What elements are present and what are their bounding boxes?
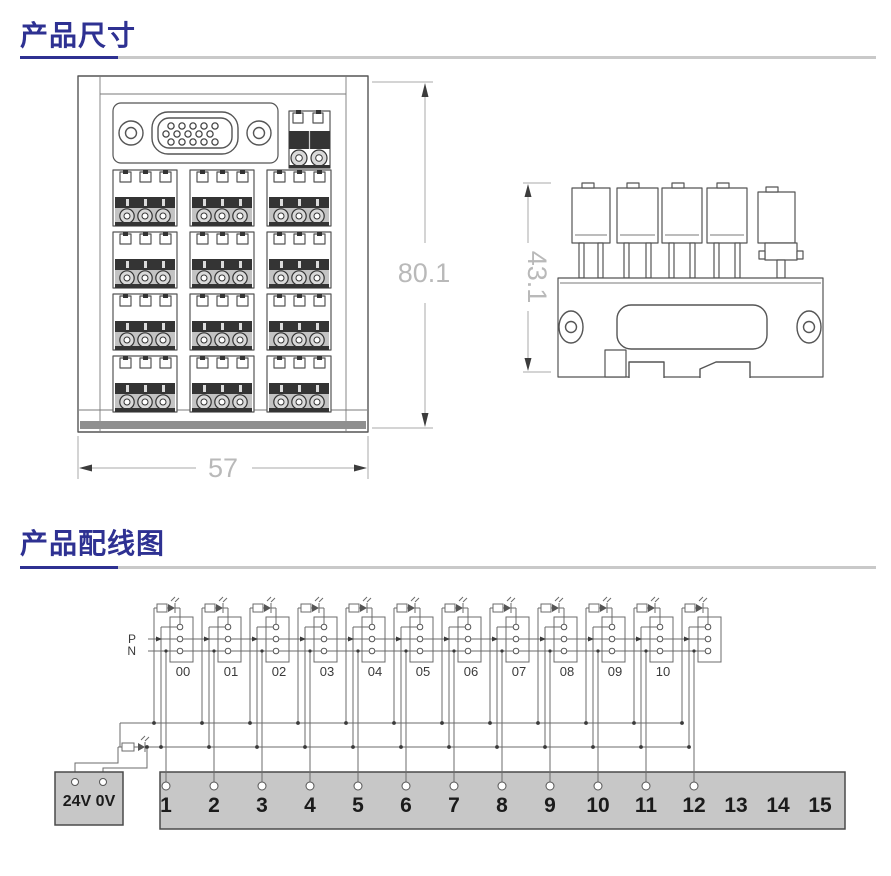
side-relay-small bbox=[758, 187, 803, 278]
dimension-width: 57 bbox=[78, 436, 368, 483]
relay-channel-label: 07 bbox=[512, 664, 526, 679]
terminal-block bbox=[267, 232, 331, 288]
terminal-block bbox=[113, 356, 177, 412]
relay-leg bbox=[714, 243, 719, 278]
relay-leg bbox=[598, 243, 603, 278]
terminal-block bbox=[113, 294, 177, 350]
section-rule bbox=[20, 56, 876, 59]
section-rule-accent bbox=[20, 566, 118, 569]
relay-unit bbox=[296, 597, 337, 782]
terminal-point bbox=[402, 782, 410, 790]
relay-channel-label: 06 bbox=[464, 664, 478, 679]
relay-unit bbox=[584, 597, 625, 782]
side-view bbox=[558, 183, 823, 380]
relay-channel-label: 04 bbox=[368, 664, 382, 679]
terminal-point bbox=[162, 782, 170, 790]
relay-notch bbox=[582, 183, 594, 188]
relay-notch bbox=[627, 183, 639, 188]
front-height-label: 80.1 bbox=[398, 258, 451, 288]
terminal-block bbox=[267, 356, 331, 412]
terminal-number: 10 bbox=[586, 794, 609, 817]
terminal-block bbox=[113, 170, 177, 226]
relay-leg bbox=[646, 243, 651, 278]
relay-unit bbox=[632, 597, 673, 782]
terminal-number: 1 bbox=[160, 794, 172, 817]
relay-leg bbox=[735, 243, 740, 278]
relay-leg bbox=[669, 243, 674, 278]
terminal-block bbox=[267, 170, 331, 226]
page: { "colors": { "heading": "#2e3192", "und… bbox=[0, 0, 891, 876]
relay-unit bbox=[392, 597, 433, 782]
terminal-number: 5 bbox=[352, 794, 364, 817]
dsub-connector bbox=[113, 103, 278, 163]
terminal-number: 15 bbox=[808, 794, 832, 817]
terminal-point bbox=[210, 782, 218, 790]
relay-channel-label: 01 bbox=[224, 664, 238, 679]
side-relay-blocks bbox=[572, 183, 747, 278]
relay-unit bbox=[152, 597, 193, 782]
terminal-block bbox=[267, 294, 331, 350]
power-indicator bbox=[118, 736, 149, 752]
relay-channel-label: 09 bbox=[608, 664, 622, 679]
dimension-drawing: 57 80.1 bbox=[0, 65, 891, 525]
terminal-point bbox=[690, 782, 698, 790]
terminal-block bbox=[113, 232, 177, 288]
section-title-dimensions: 产品尺寸 bbox=[20, 14, 136, 54]
relay-unit bbox=[344, 597, 385, 782]
relay-notch bbox=[672, 183, 684, 188]
terminal-block bbox=[190, 232, 254, 288]
front-view bbox=[78, 76, 368, 432]
relay-channel-label: 10 bbox=[656, 664, 670, 679]
terminal-number: 12 bbox=[682, 794, 705, 817]
section-rule bbox=[20, 566, 876, 569]
relay-leg bbox=[690, 243, 695, 278]
terminal-point bbox=[498, 782, 506, 790]
terminal-number: 9 bbox=[544, 794, 556, 817]
terminal-number: 8 bbox=[496, 794, 508, 817]
terminal-number: 2 bbox=[208, 794, 220, 817]
n-bus-label: N bbox=[127, 644, 136, 658]
terminal-block-grid bbox=[113, 170, 331, 412]
terminal-point bbox=[450, 782, 458, 790]
power-box-label: 24V 0V bbox=[63, 793, 116, 810]
dimension-side-height: 43.1 bbox=[522, 183, 552, 372]
relay-channel-label: 02 bbox=[272, 664, 286, 679]
power-terminal-2pos bbox=[289, 110, 330, 168]
relay-channel-label: 08 bbox=[560, 664, 574, 679]
terminal-point bbox=[642, 782, 650, 790]
relay-channel-label: 03 bbox=[320, 664, 334, 679]
relay-unit bbox=[680, 597, 721, 782]
relay-unit bbox=[200, 597, 241, 782]
terminal-block bbox=[190, 294, 254, 350]
side-height-label: 43.1 bbox=[522, 251, 552, 304]
terminal-number: 13 bbox=[724, 794, 747, 817]
relay-channel-label: 00 bbox=[176, 664, 190, 679]
relay-units: 0001020304050607080910 bbox=[152, 597, 721, 782]
terminal-point bbox=[306, 782, 314, 790]
terminal-number: 7 bbox=[448, 794, 460, 817]
relay-unit bbox=[488, 597, 529, 782]
terminal-point bbox=[354, 782, 362, 790]
terminal-number: 14 bbox=[766, 794, 790, 817]
terminal-number: 11 bbox=[635, 794, 658, 817]
relay-unit bbox=[536, 597, 577, 782]
section-title-wiring: 产品配线图 bbox=[20, 522, 165, 562]
relay-unit bbox=[248, 597, 289, 782]
wiring-diagram: P N 24V 0V 0001020304050607080910 123456… bbox=[0, 575, 891, 875]
terminal-number: 3 bbox=[256, 794, 268, 817]
section-rule-accent bbox=[20, 56, 118, 59]
terminal-point bbox=[546, 782, 554, 790]
terminal-number: 6 bbox=[400, 794, 412, 817]
relay-leg bbox=[624, 243, 629, 278]
relay-channel-label: 05 bbox=[416, 664, 430, 679]
terminal-point bbox=[258, 782, 266, 790]
front-width-label: 57 bbox=[208, 453, 238, 483]
power-box: 24V 0V bbox=[55, 772, 123, 825]
terminal-point bbox=[594, 782, 602, 790]
terminal-number: 4 bbox=[304, 794, 316, 817]
relay-leg bbox=[579, 243, 584, 278]
terminal-block bbox=[190, 170, 254, 226]
dimension-height: 80.1 bbox=[372, 82, 450, 428]
relay-notch bbox=[717, 183, 729, 188]
terminal-block bbox=[190, 356, 254, 412]
relay-unit bbox=[440, 597, 481, 782]
